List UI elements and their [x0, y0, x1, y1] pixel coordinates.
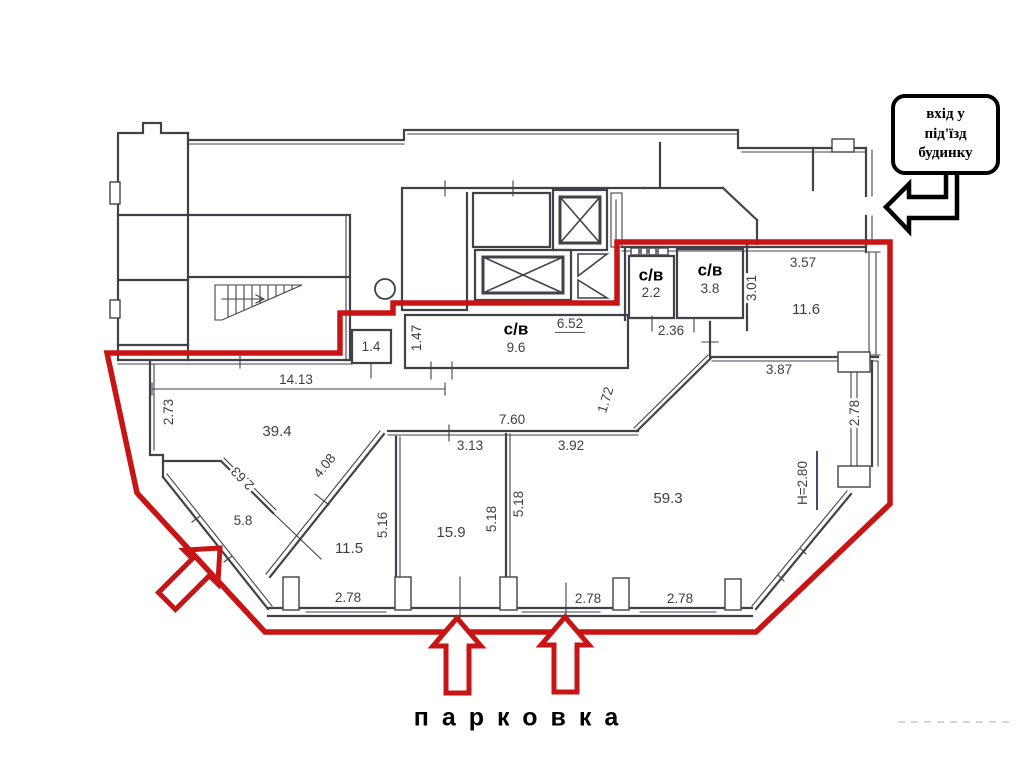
dim-2-78-bottom-1: 2.78	[333, 591, 363, 605]
fixture-strip	[631, 248, 668, 255]
entrance-callout-line3: будинку	[897, 144, 994, 164]
red-arrow-up-2	[541, 617, 589, 692]
dim-3-87: 3.87	[764, 363, 794, 377]
dim-2-78-bottom-3: 2.78	[665, 592, 695, 606]
bathroom-3-label: с/в	[502, 321, 531, 338]
dim-3-13: 3.13	[455, 439, 485, 453]
dim-2-73: 2.73	[162, 397, 176, 427]
red-apartment-outline	[107, 242, 890, 632]
dim-7-60: 7.60	[497, 413, 527, 427]
room-area-15-9: 15.9	[434, 525, 467, 541]
dim-3-01: 3.01	[745, 273, 759, 303]
dim-3-92: 3.92	[556, 439, 586, 453]
parking-label: парковка	[401, 704, 632, 733]
room-area-5-8: 5.8	[232, 514, 255, 528]
room-area-59-3: 59.3	[651, 491, 684, 507]
dim-2-78-right: 2.78	[848, 398, 862, 428]
entrance-callout-box: вхід у під'їзд будинку	[891, 94, 1000, 175]
bathroom-2-area: 3.8	[699, 282, 722, 296]
elevator-shaft-icons	[475, 190, 622, 300]
bathroom-3-area: 9.6	[505, 341, 528, 355]
bathroom-2-label: с/в	[696, 262, 725, 279]
room-area-11-5: 11.5	[333, 541, 365, 557]
dim-5-16: 5.16	[376, 510, 390, 540]
bathroom-1-label: с/в	[637, 267, 666, 284]
column-circle	[375, 279, 395, 299]
dim-2-78-bottom-2: 2.78	[573, 592, 603, 606]
dim-5-18-left: 5.18	[485, 504, 499, 534]
entrance-callout-line1: вхід у	[897, 105, 994, 125]
staircase-icon	[215, 285, 302, 320]
floor-plan-page: вхід у під'їзд будинку парковка с/в 2.2 …	[0, 0, 1024, 767]
dim-3-57: 3.57	[788, 256, 818, 270]
room-area-1-4: 1.4	[360, 340, 383, 354]
room-area-11-6: 11.6	[790, 302, 822, 318]
red-arrow-diagonal	[150, 531, 237, 618]
wall-piers	[110, 139, 870, 610]
room-area-39-4: 39.4	[260, 424, 293, 440]
entrance-arrow	[886, 171, 957, 231]
bathroom-1-area: 2.2	[640, 286, 663, 300]
dim-5-18-right: 5.18	[512, 489, 526, 519]
floor-plan-drawing	[0, 0, 1024, 767]
dim-14-13: 14.13	[277, 373, 315, 387]
dim-2-36: 2.36	[656, 324, 686, 338]
dim-6-52: 6.52	[555, 317, 585, 333]
dim-height-2-80: H=2.80	[796, 459, 810, 507]
dim-1-47: 1.47	[410, 323, 424, 353]
entrance-callout-line2: під'їзд	[897, 125, 994, 145]
